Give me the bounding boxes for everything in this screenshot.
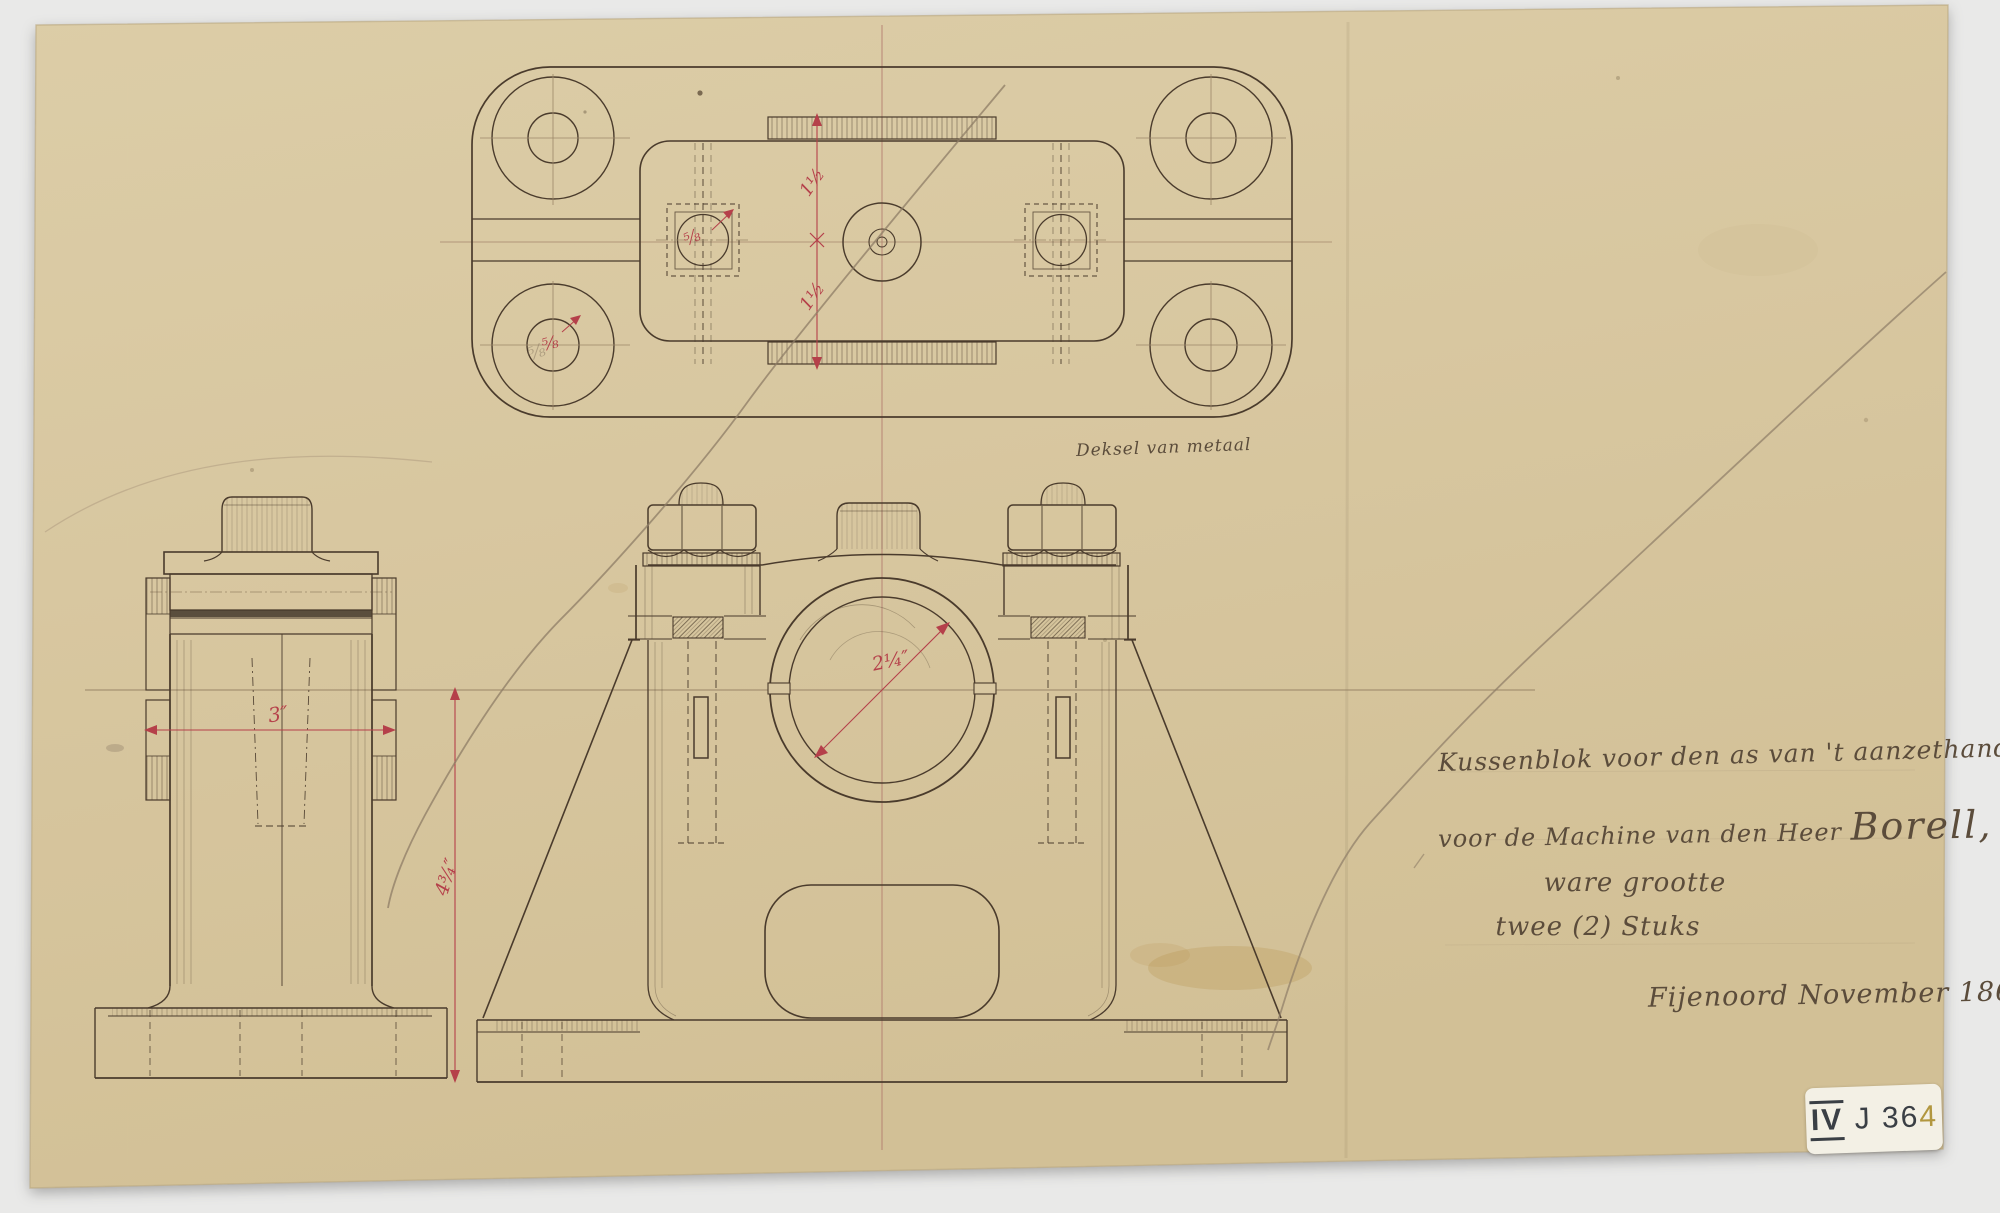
sticker-roman-numeral: IV [1809,1100,1845,1141]
scanned-sheet [0,0,2000,1213]
title-line-2-text: voor de Machine van den Heer [1438,818,1851,853]
title-line-2-name: Borell, [1850,802,1993,848]
title-line-3: ware grootte [1520,868,1750,898]
fold-crease [1346,22,1348,1158]
title-line-4: twee (2) Stuks [1468,912,1728,942]
sticker-code-suffix: 4 [1919,1100,1939,1135]
drawing-scan: Deksel van metaal Kussenblok voor den as… [0,0,2000,1213]
archive-sticker: IV J 364 [1805,1084,1943,1155]
sticker-code: J 36 [1844,1100,1920,1137]
title-line-2: voor de Machine van den Heer Borell, [1438,804,1899,856]
title-line-5: Fijenoord November 1861 [1648,977,1960,1013]
dim-column-width: 3″ [266,701,289,728]
